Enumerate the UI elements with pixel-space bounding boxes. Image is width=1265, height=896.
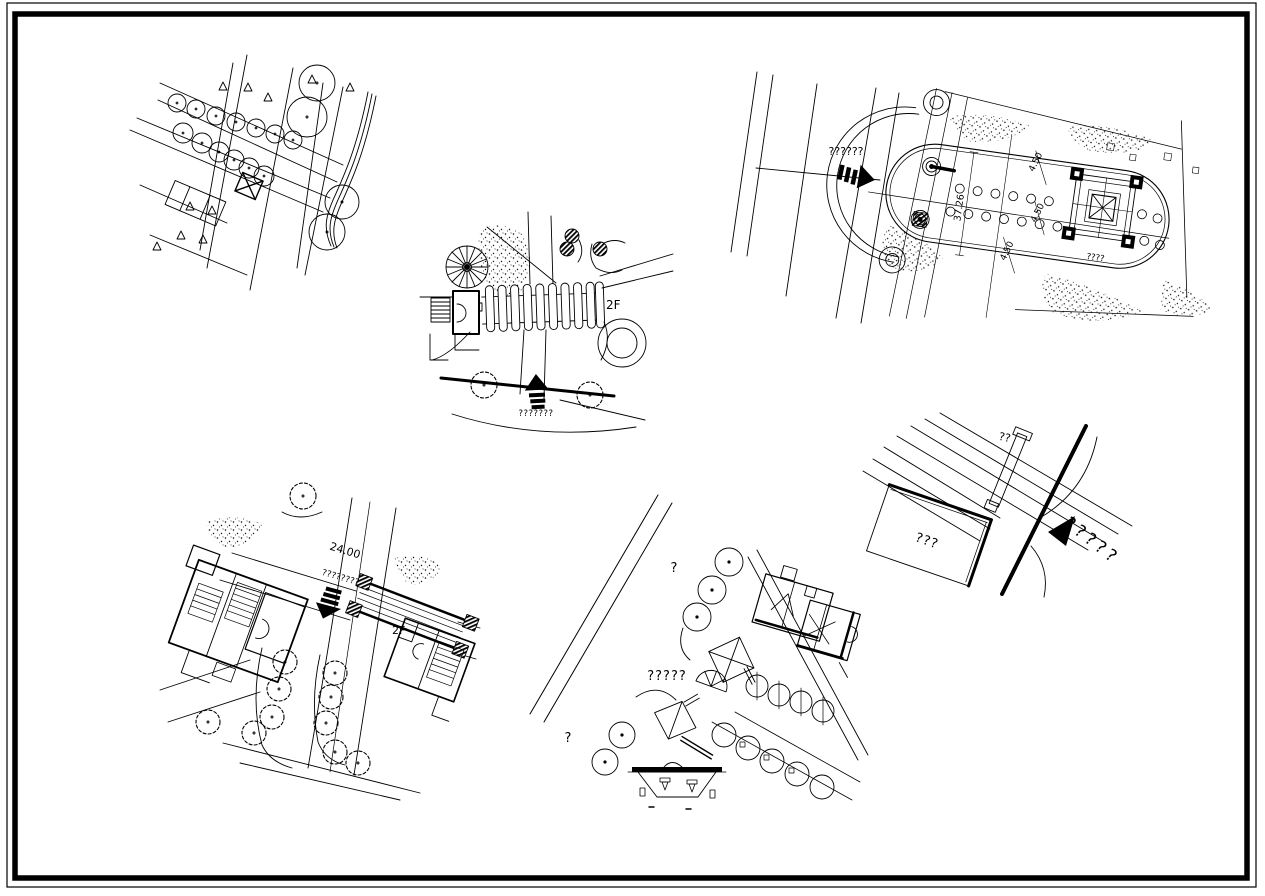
tree-symbol [290,483,316,509]
plan-bottom-left: 24.00 ???????? [151,483,480,800]
tree-column [314,661,370,775]
plan-bottom-middle: ? ? ????? [530,495,872,809]
plan-middle-right: ??? ?? ????? [863,413,1132,597]
dim-label: 4.50 [999,240,1017,263]
cad-drawing-canvas: 2F ??????? [0,0,1265,896]
dense-tree-symbols [560,229,607,256]
entrance-arrow-icon [524,373,550,409]
dim-label: 4.50 [1027,151,1045,174]
building-left [151,545,312,705]
query-mark: ? [565,731,572,746]
plan-top-middle: 2F ??????? [420,212,673,432]
tree-symbols-dotted [592,548,743,775]
direction-arrow-icon [836,161,877,192]
query-mark: ? [671,561,678,576]
building-block [165,180,226,225]
path-caption: ????? [647,669,687,684]
cad-sheet: 2F ??????? [0,0,1265,896]
gate-column-symbol [910,209,930,229]
floor-label: 2F [606,298,621,312]
floor-label: 2F [392,624,405,637]
shrub-symbols [153,75,354,250]
garden-structures [646,619,767,764]
building-pad: ??? [866,485,991,586]
road-caption: ?????? [828,145,863,158]
road-width-dim: 24.00 [328,540,362,562]
marker-caption: ?? [998,430,1012,445]
plan-top-left [130,55,376,290]
tree-column [196,650,297,745]
planting-texture [876,99,1237,338]
road-axis-line [1002,426,1086,594]
spoked-tree-symbol [446,246,488,288]
sheet-border [7,3,1256,887]
tree-row [168,94,302,149]
pavilion-caption: ???? [1086,252,1105,264]
plan-top-right: ?????? [731,72,1239,361]
gate-elevation-drawing [628,763,726,810]
building-caption: ??? [913,531,940,553]
lamp-glyph [660,778,670,790]
tree-symbol [471,372,497,398]
entrance-caption: ??????? [518,409,553,419]
planting-texture [395,556,442,585]
building-complex [745,561,873,677]
planting-texture [205,517,262,548]
lamp-glyph [687,780,697,792]
large-tree-symbols [287,65,359,250]
dim-label: 4.50 [1029,202,1047,225]
tree-row-with-stakes [712,723,834,799]
road-caption-rotated: ????? [1060,513,1124,569]
pergola-structure [481,282,605,332]
tree-row-with-stakes [746,672,834,725]
pavilion-symbol [1061,166,1143,248]
bridge-structure [346,574,480,659]
